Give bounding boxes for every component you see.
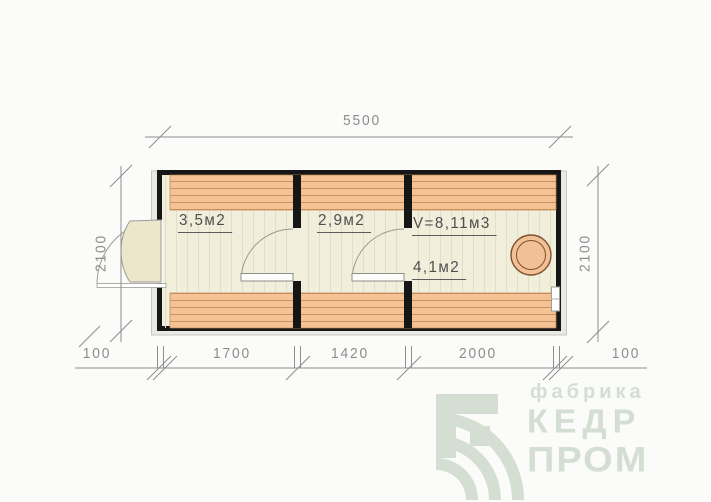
room3-area-label: 4,1м2 (412, 259, 466, 280)
logo-mark (436, 394, 518, 500)
logo-tagline: фабрика (530, 382, 648, 402)
dim-bottom-segment-0: 100 (83, 345, 112, 362)
entrance-door-leaf (121, 220, 161, 282)
entrance-threshold (97, 284, 166, 288)
dim-bottom-segment-1: 1700 (213, 345, 251, 362)
floor-plan-canvas: 5500 2100 2100 100 1700 1420 2000 100 3,… (0, 0, 711, 502)
dim-height-left: 2100 (93, 234, 110, 272)
room3-volume-label: V=8,11м3 (412, 215, 496, 236)
logo-wordmark: фабрика КЕДР ПРОМ (527, 382, 648, 481)
logo-word-prom: ПРОМ (527, 443, 648, 478)
dim-bottom-segment-3: 2000 (459, 345, 497, 362)
dim-bottom-segment-2: 1420 (331, 345, 369, 362)
logo-word-kedr: КЕДР (527, 405, 648, 438)
top-plank-band (170, 175, 556, 210)
room1-area-label: 3,5м2 (178, 212, 232, 233)
logo-mark-ring-1 (436, 464, 472, 500)
dim-bottom-segment-4: 100 (612, 345, 641, 362)
door-leaf-1 (241, 274, 293, 282)
room2-area-label: 2,9м2 (317, 212, 371, 233)
dim-width-total: 5500 (343, 112, 381, 129)
bottom-plank-band (170, 293, 556, 328)
dim-height-right: 2100 (577, 234, 594, 272)
door-leaf-2 (352, 274, 404, 282)
